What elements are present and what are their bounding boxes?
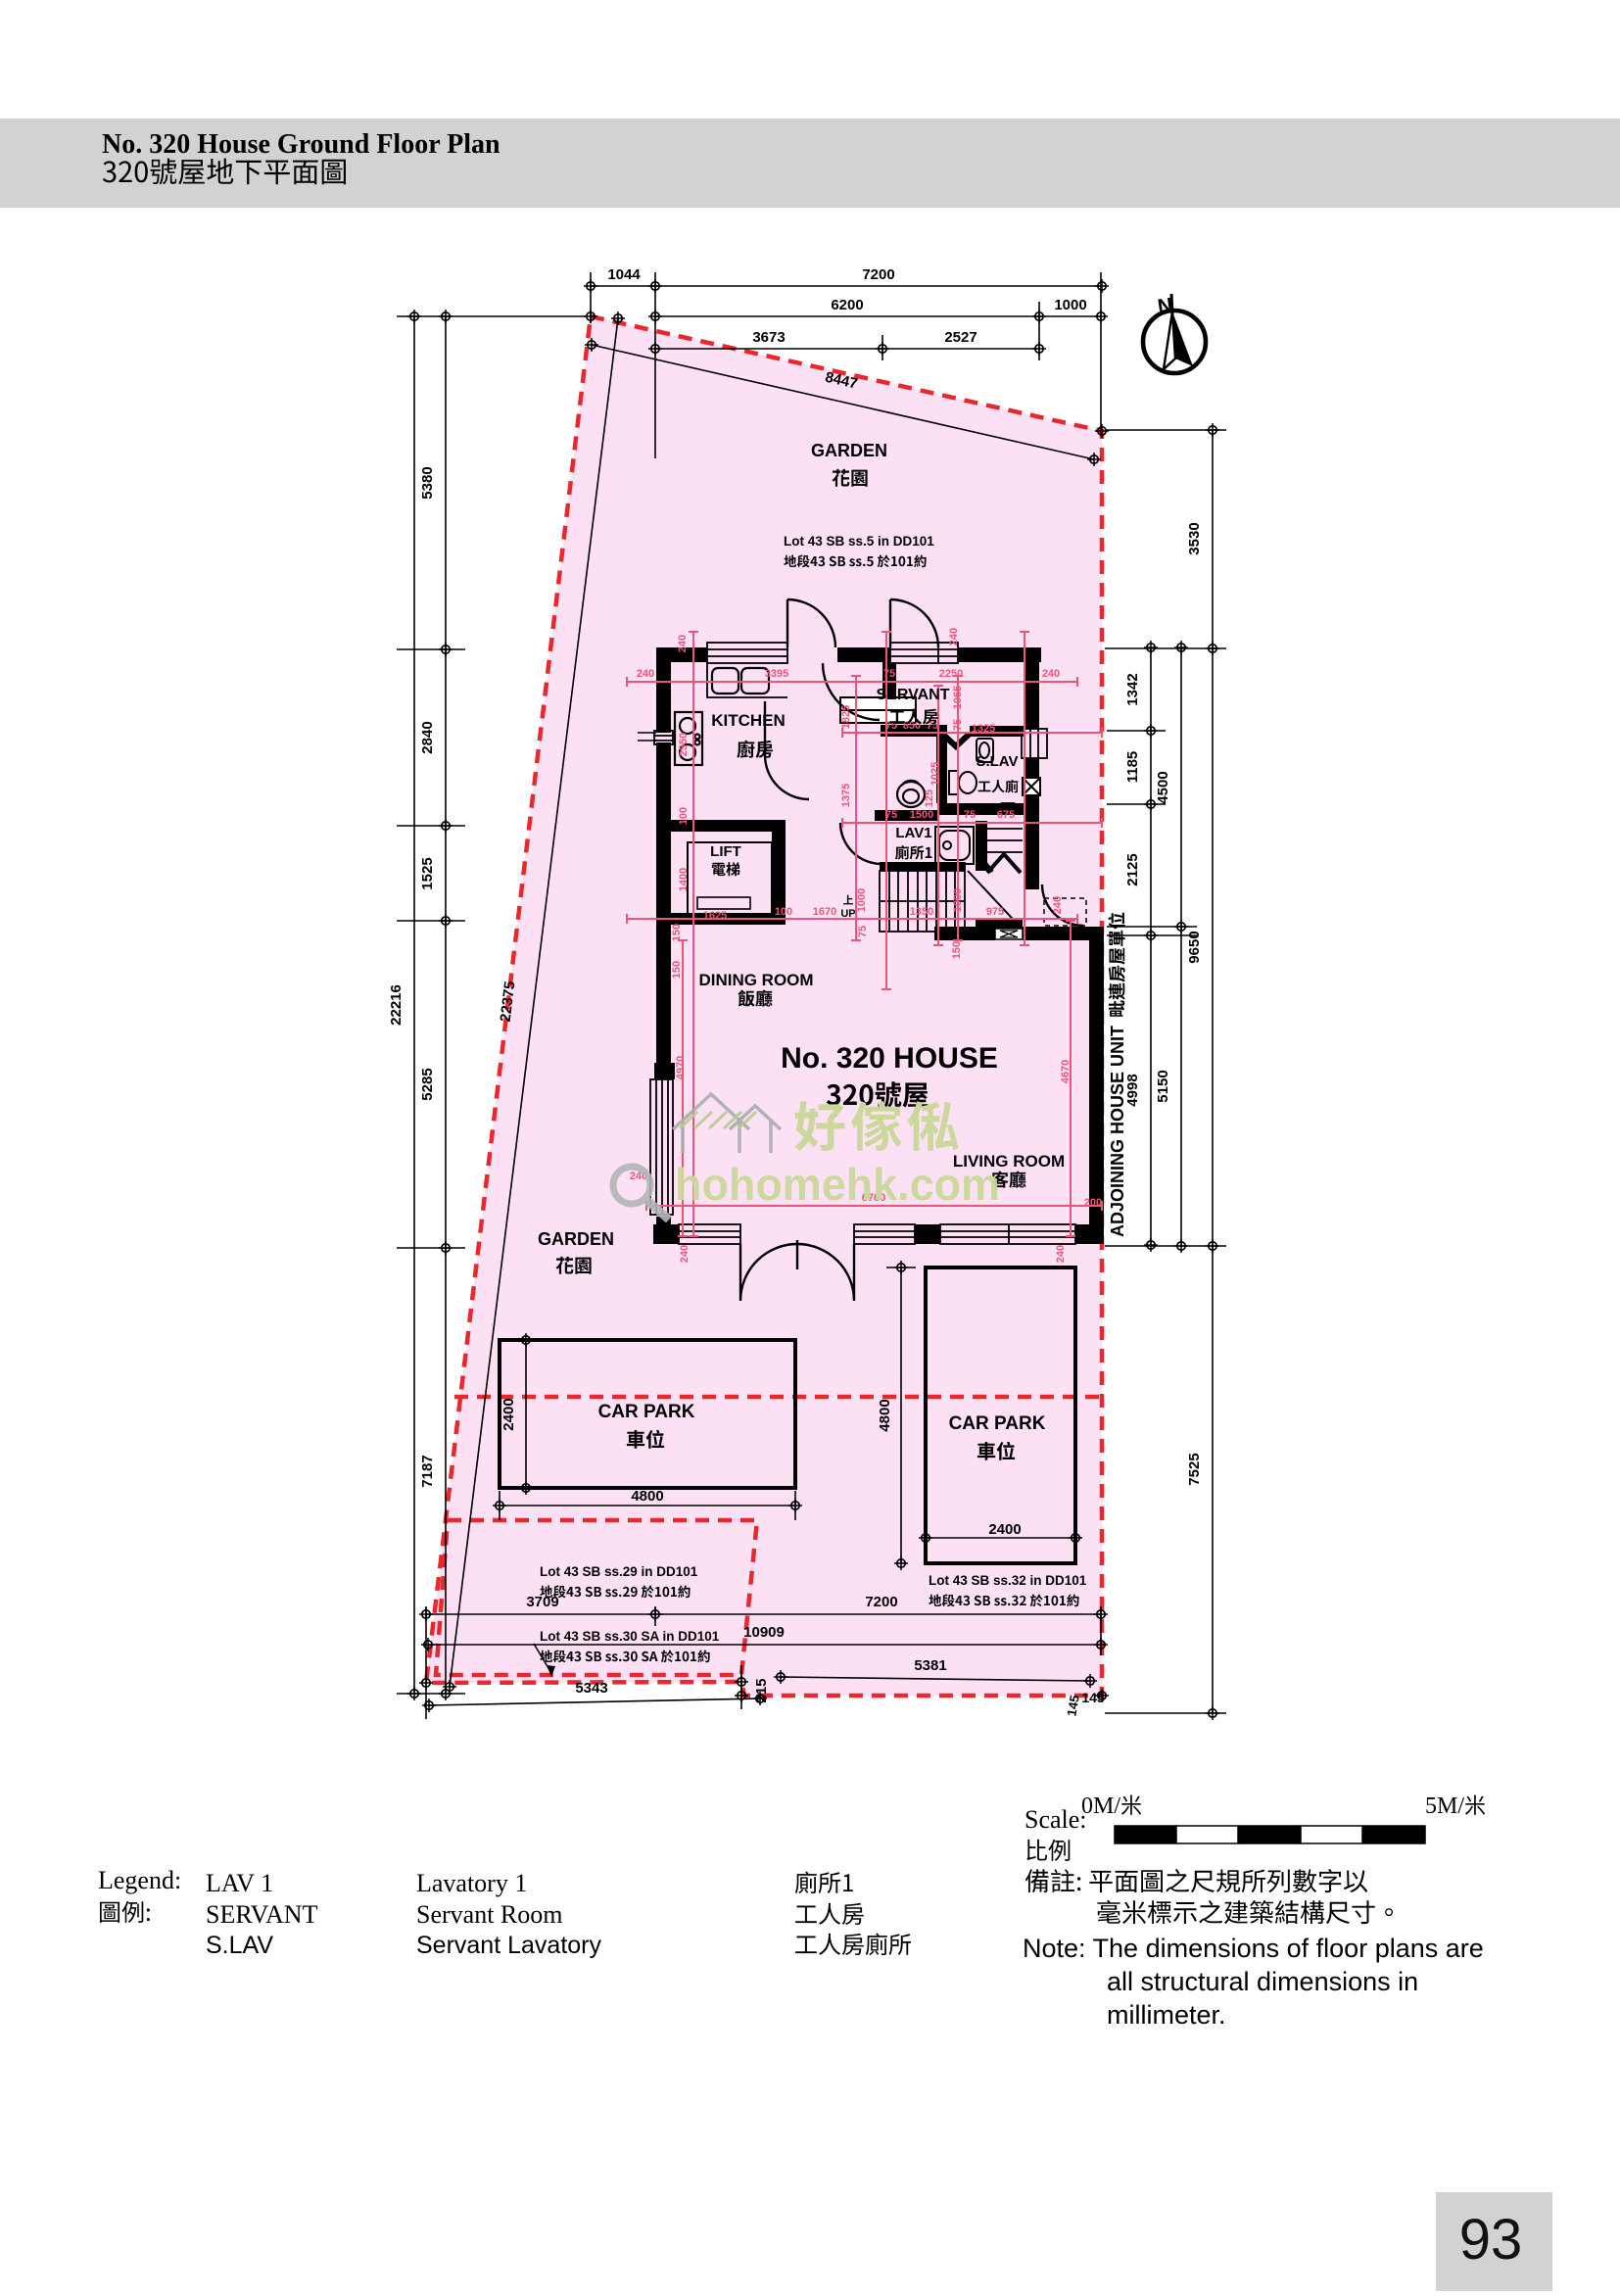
svg-text:1525: 1525 [419, 857, 436, 889]
svg-text:1342: 1342 [1124, 673, 1141, 705]
svg-text:3709: 3709 [526, 1594, 558, 1610]
svg-text:7525: 7525 [1186, 1453, 1203, 1485]
svg-text:5150: 5150 [1155, 1070, 1171, 1102]
svg-text:5380: 5380 [419, 466, 436, 499]
svg-text:93: 93 [1459, 2208, 1523, 2272]
svg-text:240: 240 [1052, 896, 1064, 914]
svg-text:1670: 1670 [813, 906, 836, 918]
svg-text:LAV 1: LAV 1 [206, 1869, 273, 1897]
svg-text:240: 240 [948, 628, 960, 646]
svg-text:2125: 2125 [1124, 853, 1141, 885]
svg-text:150: 150 [671, 961, 683, 979]
svg-text:Lot 43 SB ss.30 SA in DD101: Lot 43 SB ss.30 SA in DD101 [540, 1629, 720, 1644]
svg-text:Lavatory 1: Lavatory 1 [416, 1869, 527, 1897]
svg-text:3530: 3530 [1186, 522, 1203, 554]
svg-text:SERVANT: SERVANT [206, 1900, 318, 1929]
svg-text:125: 125 [924, 789, 935, 807]
svg-text:GARDEN: GARDEN [811, 441, 887, 460]
svg-text:1065: 1065 [952, 686, 964, 709]
svg-text:S.LAV: S.LAV [976, 753, 1018, 770]
svg-text:ADJOINING HOUSE UNIT: ADJOINING HOUSE UNIT [1108, 1026, 1127, 1237]
svg-text:9650: 9650 [1186, 931, 1203, 963]
svg-text:4800: 4800 [631, 1488, 663, 1505]
svg-text:1625: 1625 [703, 910, 727, 922]
svg-text:5381: 5381 [914, 1657, 946, 1674]
svg-text:6200: 6200 [831, 297, 863, 313]
svg-text:200: 200 [1084, 1197, 1102, 1209]
svg-text:Lot 43 SB ss.5 in DD101: Lot 43 SB ss.5 in DD101 [784, 534, 934, 549]
svg-text:4670: 4670 [1060, 1060, 1072, 1083]
svg-text:240: 240 [677, 635, 689, 652]
svg-text:75: 75 [952, 719, 964, 731]
svg-text:Scale:: Scale: [1024, 1805, 1087, 1834]
svg-text:S.LAV: S.LAV [206, 1932, 273, 1959]
svg-text:3673: 3673 [752, 329, 785, 346]
svg-text:1325: 1325 [972, 723, 995, 735]
svg-text:22216: 22216 [388, 984, 405, 1026]
svg-text:100: 100 [678, 807, 690, 825]
svg-text:KITCHEN: KITCHEN [711, 711, 786, 730]
svg-text:millimeter.: millimeter. [1107, 2000, 1226, 2030]
svg-text:all structural dimensions in: all structural dimensions in [1107, 1967, 1418, 1996]
svg-text:1000: 1000 [1054, 297, 1086, 313]
svg-text:75: 75 [883, 668, 895, 680]
svg-text:75: 75 [964, 809, 976, 821]
svg-text:2400: 2400 [500, 1398, 517, 1430]
svg-text:100: 100 [775, 906, 792, 918]
svg-text:No. 320 House Ground Floor Pla: No. 320 House Ground Floor Plan [102, 129, 500, 160]
svg-text:1025: 1025 [929, 762, 941, 786]
svg-text:2840: 2840 [419, 721, 436, 753]
svg-text:1185: 1185 [1124, 751, 1141, 784]
svg-text:7200: 7200 [865, 1594, 897, 1610]
svg-text:N: N [1156, 294, 1173, 318]
svg-text:10909: 10909 [743, 1624, 785, 1641]
svg-text:0M/: 0M/ [1081, 1794, 1120, 1819]
svg-text:75: 75 [857, 926, 869, 937]
svg-text:Note: The dimensions of floor: Note: The dimensions of floor plans are [1023, 1934, 1484, 1963]
svg-text:LIFT: LIFT [710, 843, 741, 860]
svg-text:CAR PARK: CAR PARK [598, 1402, 695, 1422]
svg-text:SERVANT: SERVANT [877, 687, 950, 703]
svg-text:150: 150 [951, 941, 963, 959]
svg-text:1400: 1400 [678, 868, 690, 891]
svg-text:75: 75 [885, 809, 897, 821]
svg-text:150: 150 [671, 924, 683, 941]
svg-text:4970: 4970 [675, 1056, 687, 1079]
svg-text:3395: 3395 [765, 668, 788, 680]
svg-text:215: 215 [753, 1678, 770, 1702]
svg-text:240: 240 [1042, 668, 1060, 680]
svg-text:4800: 4800 [877, 1399, 893, 1431]
svg-text:2550: 2550 [678, 733, 690, 756]
svg-text:675: 675 [997, 809, 1015, 821]
svg-text:975: 975 [986, 906, 1004, 918]
svg-text:7187: 7187 [419, 1455, 436, 1487]
svg-text:1000: 1000 [952, 888, 964, 912]
svg-text:2527: 2527 [944, 329, 977, 346]
svg-text:4500: 4500 [1155, 771, 1171, 803]
svg-text:7200: 7200 [862, 266, 894, 283]
svg-text:GARDEN: GARDEN [538, 1229, 614, 1249]
svg-text:240: 240 [637, 668, 654, 680]
svg-text:1500: 1500 [910, 809, 933, 821]
svg-text:1375: 1375 [840, 784, 852, 807]
svg-text:Lot 43 SB ss.32 in DD101: Lot 43 SB ss.32 in DD101 [929, 1573, 1087, 1588]
svg-text:CAR PARK: CAR PARK [949, 1413, 1046, 1434]
svg-text:Servant Lavatory: Servant Lavatory [416, 1932, 601, 1959]
svg-text:1000: 1000 [856, 888, 868, 912]
svg-text:DINING ROOM: DINING ROOM [698, 971, 813, 989]
svg-text:1350: 1350 [910, 906, 933, 918]
svg-text:No. 320 HOUSE: No. 320 HOUSE [781, 1042, 998, 1075]
svg-text:1044: 1044 [607, 266, 641, 283]
svg-text:240: 240 [1055, 1245, 1067, 1263]
svg-text:LAV1: LAV1 [895, 825, 931, 841]
svg-text:2250: 2250 [939, 668, 963, 680]
svg-text:Servant Room: Servant Room [416, 1900, 563, 1929]
svg-text:5285: 5285 [419, 1068, 436, 1100]
svg-text:hohomehk.com: hohomehk.com [675, 1159, 1000, 1210]
svg-text:5M/: 5M/ [1425, 1794, 1464, 1819]
svg-text:145: 145 [1081, 1690, 1105, 1705]
svg-text:240: 240 [679, 1245, 691, 1263]
svg-text:5343: 5343 [575, 1680, 607, 1697]
svg-text:Legend:: Legend: [98, 1866, 181, 1894]
svg-text:1825: 1825 [840, 705, 852, 729]
svg-text:Lot 43 SB ss.29 in DD101: Lot 43 SB ss.29 in DD101 [540, 1564, 698, 1579]
svg-text:2400: 2400 [988, 1521, 1021, 1538]
